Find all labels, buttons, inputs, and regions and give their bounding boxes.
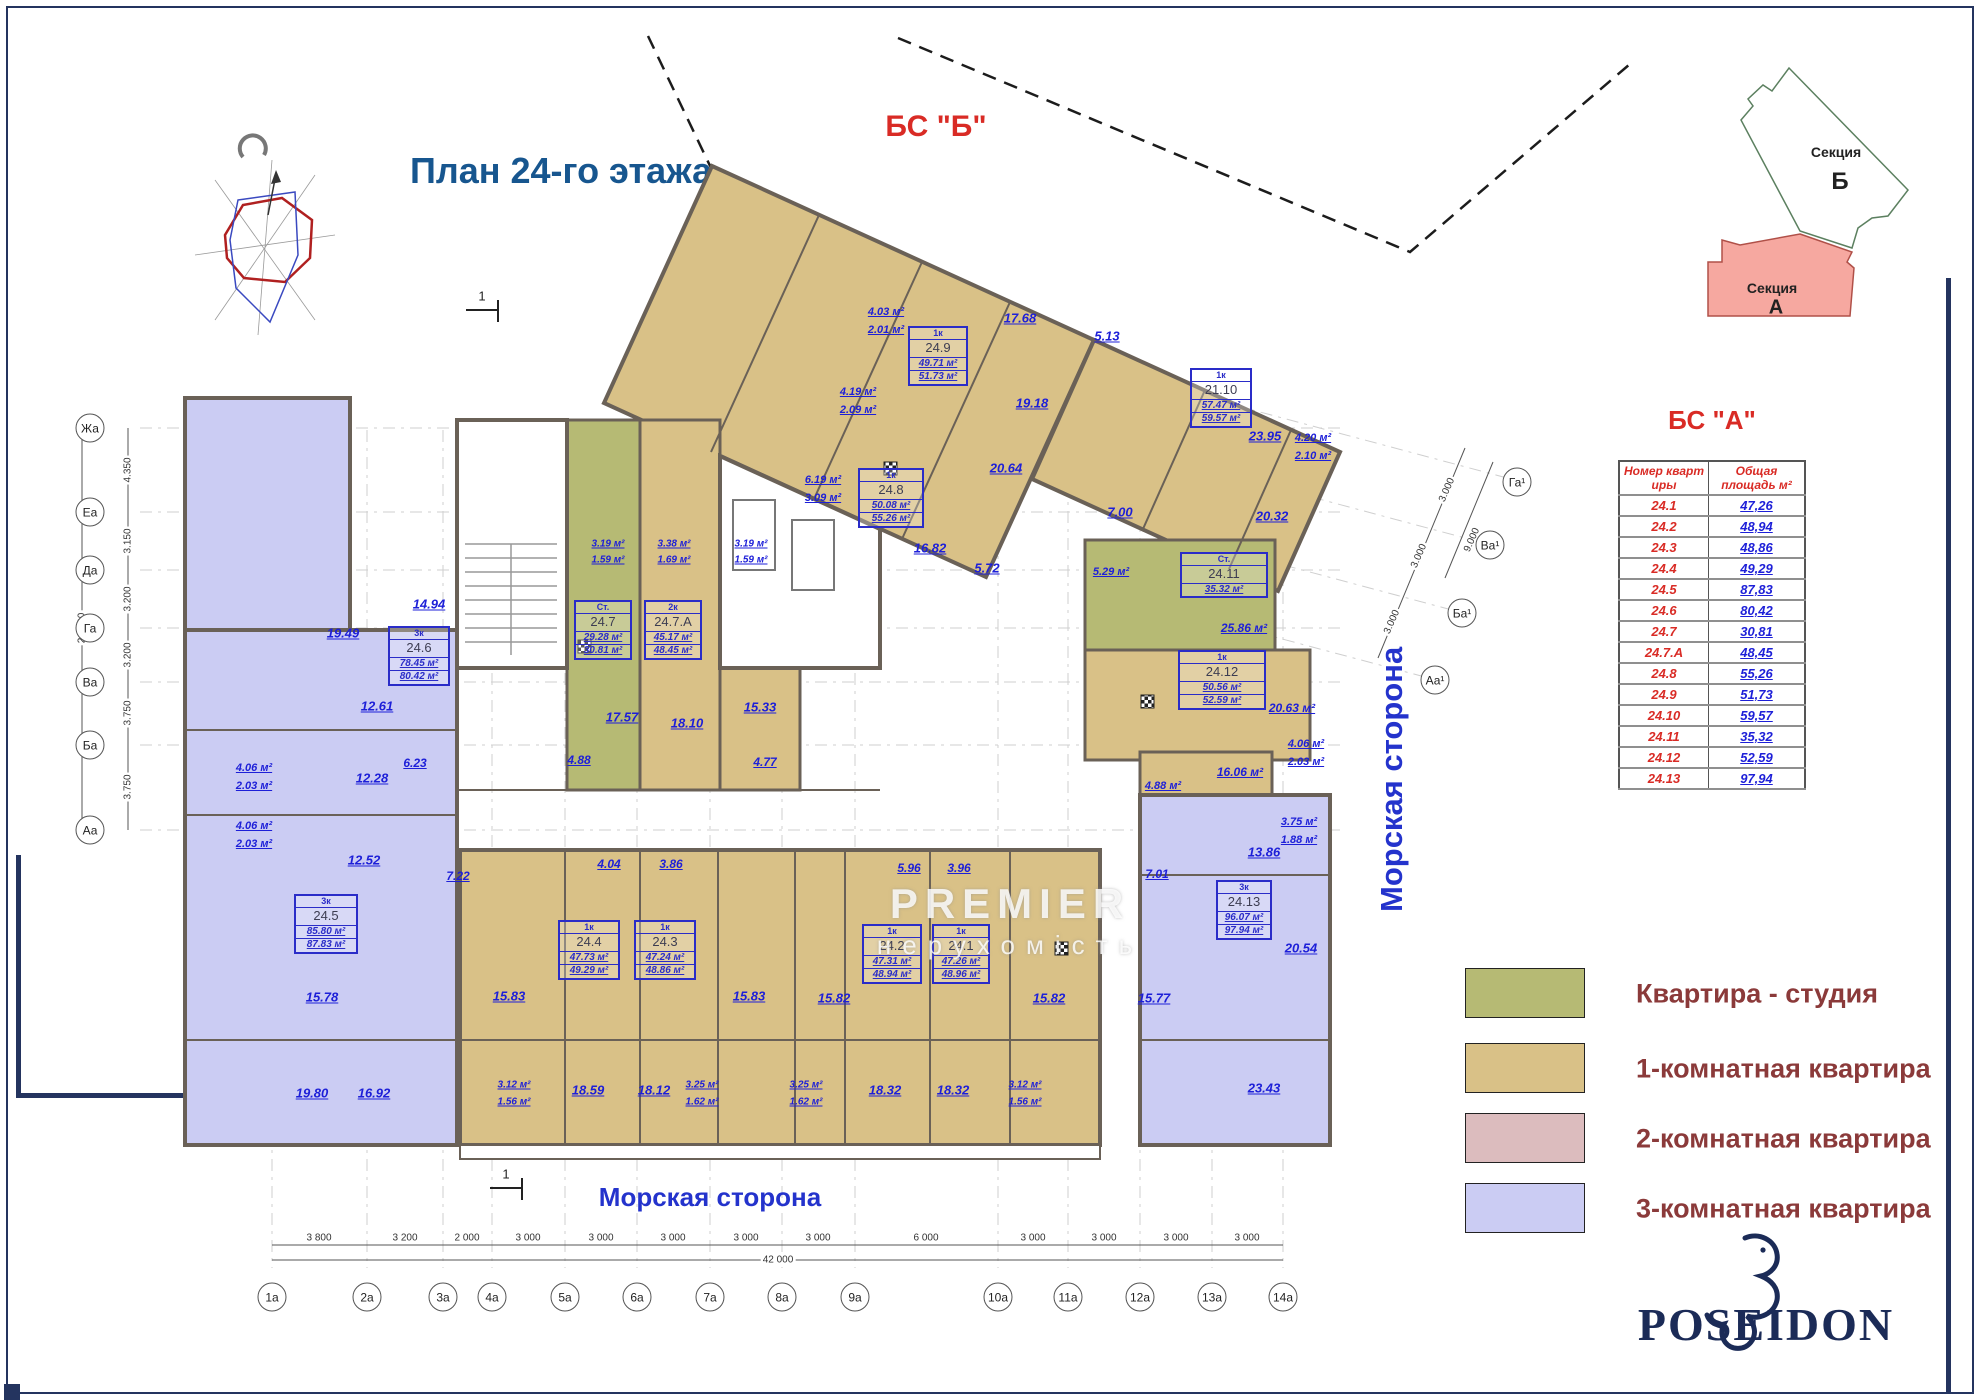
room-area-label: 4.03 м² — [868, 306, 904, 318]
room-area-label: 18.59 — [572, 1083, 605, 1098]
room-area-label: 15.83 — [493, 989, 526, 1004]
axis-left-ba: Ба — [76, 731, 105, 760]
dim-label: 3.200 — [123, 584, 134, 613]
inset-section-a-letter: А — [1769, 297, 1783, 320]
apartment-area-table: Номер кварт иры Общая площадь м² 24.147,… — [1618, 460, 1806, 790]
dim-label: 6 000 — [911, 1233, 940, 1244]
room-area-label: 3.75 м² — [1281, 816, 1317, 828]
room-area-label: 7.22 — [446, 869, 469, 883]
unit-label-24-5: 3к24.5 85.80 м²87.83 м² — [294, 894, 358, 954]
room-area-label: 1.56 м² — [498, 1097, 531, 1108]
dim-label: 3 000 — [803, 1233, 832, 1244]
building-inset — [1708, 68, 1908, 316]
dim-label: 4.350 — [123, 455, 134, 484]
room-area-label: 19.80 — [296, 1086, 329, 1101]
dim-label: 3.750 — [123, 698, 134, 727]
floor-plan-page: План 24-го этажа БС "Б" БС "А" Секция Б … — [0, 0, 1980, 1400]
dim-label: 2 000 — [452, 1233, 481, 1244]
room-area-label: 17.68 — [1004, 311, 1037, 326]
axis-bottom-4a: 4а — [478, 1283, 507, 1312]
sea-side-label-bottom: Морская сторона — [540, 1182, 880, 1213]
table-row: 24.680,42 — [1619, 600, 1805, 621]
axis-left-aa: Аа — [76, 816, 105, 845]
room-area-label: 20.63 м² — [1269, 701, 1315, 715]
room-area-label: 1.59 м² — [735, 555, 768, 566]
watermark: PREMIER нерухомість — [820, 880, 1200, 961]
room-area-label: 4.20 м² — [1295, 432, 1331, 444]
legend-label-studio: Квартира - студия — [1636, 979, 1878, 1010]
room-area-label: 18.32 — [869, 1083, 902, 1098]
table-header-number: Номер кварт иры — [1619, 461, 1709, 495]
table-row: 24.7.А48,45 — [1619, 642, 1805, 663]
room-area-label: 15.83 — [733, 989, 766, 1004]
room-area-label: 4.04 — [597, 857, 620, 871]
room-area-label: 3.19 м² — [735, 539, 768, 550]
dim-total-bottom: 42 000 — [761, 1255, 796, 1266]
room-area-label: 7.01 — [1145, 867, 1168, 881]
axis-bottom-2a: 2а — [353, 1283, 382, 1312]
axis-bottom-14a: 14а — [1269, 1283, 1298, 1312]
room-area-label: 20.32 — [1256, 509, 1289, 524]
axis-bottom-8a: 8а — [768, 1283, 797, 1312]
room-area-label: 1.59 м² — [592, 555, 625, 566]
compass-icon — [195, 135, 335, 335]
dim-label: 3 000 — [658, 1233, 687, 1244]
dim-label: 3 000 — [1089, 1233, 1118, 1244]
table-row: 24.248,94 — [1619, 516, 1805, 537]
inset-section-b-letter: Б — [1831, 168, 1848, 196]
room-area-label: 3.25 м² — [686, 1080, 719, 1091]
axis-bottom-12a: 12а — [1126, 1283, 1155, 1312]
room-area-label: 1.62 м² — [686, 1097, 719, 1108]
room-area-label: 4.77 — [753, 755, 776, 769]
room-area-label: 23.95 — [1249, 429, 1282, 444]
axis-bottom-9a: 9а — [841, 1283, 870, 1312]
dim-label: 3.150 — [123, 526, 134, 555]
room-area-label: 18.12 — [638, 1083, 671, 1098]
room-area-label: 5.96 — [897, 861, 920, 875]
room-area-label: 7.00 — [1107, 505, 1132, 520]
room-area-label: 3.09 м² — [805, 492, 841, 504]
room-area-label: 12.52 — [348, 853, 381, 868]
unit-label-24-7a: 2к24.7.А 45.17 м²48.45 м² — [644, 600, 702, 660]
axis-bottom-13a: 13а — [1198, 1283, 1227, 1312]
table-row: 24.730,81 — [1619, 621, 1805, 642]
room-area-label: 17.57 — [606, 710, 639, 725]
dim-label: 3 800 — [304, 1233, 333, 1244]
room-area-label: 6.23 — [403, 756, 426, 770]
room-area-label: 20.54 — [1285, 941, 1318, 956]
dim-label: 3 000 — [1161, 1233, 1190, 1244]
room-area-label: 1.88 м² — [1281, 834, 1317, 846]
axis-bottom-6a: 6а — [623, 1283, 652, 1312]
room-area-label: 12.28 — [356, 771, 389, 786]
unit-label-24-6: 3к24.6 78.45 м²80.42 м² — [388, 626, 450, 686]
room-area-label: 16.82 — [914, 541, 947, 556]
room-area-label: 15.33 — [744, 700, 777, 715]
axis-right-va1: Ва¹ — [1476, 531, 1505, 560]
room-area-label: 19.18 — [1016, 396, 1049, 411]
table-row: 24.1397,94 — [1619, 768, 1805, 789]
unit-label-24-10: 1к21.10 57.47 м²59.57 м² — [1190, 368, 1252, 428]
unit-label-24-12: 1к24.12 50.56 м²52.59 м² — [1178, 650, 1266, 710]
room-area-label: 12.61 — [361, 699, 394, 714]
room-area-label: 2.03 м² — [236, 780, 272, 792]
room-area-label: 3.12 м² — [1009, 1080, 1042, 1091]
dim-label: 3 000 — [586, 1233, 615, 1244]
room-area-label: 4.19 м² — [840, 386, 876, 398]
dim-label: 3 000 — [513, 1233, 542, 1244]
table-row: 24.587,83 — [1619, 579, 1805, 600]
table-row: 24.147,26 — [1619, 495, 1805, 516]
room-area-label: 13.86 — [1248, 845, 1281, 860]
dim-label: 3 000 — [1018, 1233, 1047, 1244]
room-area-label: 5.72 — [974, 561, 999, 576]
dim-label: 3.200 — [123, 640, 134, 669]
room-area-label: 18.10 — [671, 716, 704, 731]
room-area-label: 19.49 — [327, 626, 360, 641]
unit-label-24-3: 1к24.3 47.24 м²48.86 м² — [634, 920, 696, 980]
dim-label: 3 200 — [390, 1233, 419, 1244]
dim-label: 3 000 — [1232, 1233, 1261, 1244]
axis-left-ga: Га — [76, 614, 105, 643]
room-area-label: 2.10 м² — [1295, 450, 1331, 462]
room-area-label: 18.32 — [937, 1083, 970, 1098]
table-row: 24.348,86 — [1619, 537, 1805, 558]
room-area-label: 2.01 м² — [868, 324, 904, 336]
room-area-label: 3.25 м² — [790, 1080, 823, 1091]
room-area-label: 3.19 м² — [592, 539, 625, 550]
table-header-area: Общая площадь м² — [1709, 461, 1806, 495]
room-area-label: 23.43 — [1248, 1081, 1281, 1096]
axis-bottom-5a: 5а — [551, 1283, 580, 1312]
legend-swatch-2room — [1465, 1113, 1585, 1163]
room-area-label: 15.78 — [306, 990, 339, 1005]
room-area-label: 6.19 м² — [805, 474, 841, 486]
unit-label-24-7: Ст.24.7 29.28 м²30.81 м² — [574, 600, 632, 660]
dim-label: 3 000 — [731, 1233, 760, 1244]
axis-bottom-1a: 1а — [258, 1283, 287, 1312]
table-row: 24.1059,57 — [1619, 705, 1805, 726]
axis-bottom-10a: 10а — [984, 1283, 1013, 1312]
axis-right-ba1: Ба¹ — [1448, 599, 1477, 628]
legend-swatch-studio — [1465, 968, 1585, 1018]
room-area-label: 2.03 м² — [236, 838, 272, 850]
table-row: 24.1135,32 — [1619, 726, 1805, 747]
legend-label-1room: 1-комнатная квартира — [1636, 1054, 1931, 1085]
room-area-label: 15.82 — [818, 991, 851, 1006]
room-area-label: 1.69 м² — [658, 555, 691, 566]
table-row: 24.855,26 — [1619, 663, 1805, 684]
unit-label-24-13: 3к24.13 96.07 м²97.94 м² — [1216, 880, 1272, 940]
room-area-label: 5.13 — [1094, 329, 1119, 344]
inset-section-b-word: Секция — [1811, 144, 1861, 160]
room-area-label: 3.12 м² — [498, 1080, 531, 1091]
axis-bottom-3a: 3а — [429, 1283, 458, 1312]
room-area-label: 4.06 м² — [1288, 738, 1324, 750]
axis-left-va: Ва — [76, 668, 105, 697]
inset-section-a-word: Секция — [1747, 280, 1797, 296]
table-row: 24.951,73 — [1619, 684, 1805, 705]
table-row: 24.449,29 — [1619, 558, 1805, 579]
apartment-regions — [185, 166, 1340, 1159]
room-area-label: 1.56 м² — [1009, 1097, 1042, 1108]
unit-label-24-4: 1к24.4 47.73 м²49.29 м² — [558, 920, 620, 980]
room-area-label: 1.62 м² — [790, 1097, 823, 1108]
room-area-label: 4.88 м² — [1145, 780, 1181, 792]
section-mark-bottom: 1 — [502, 1167, 509, 1182]
room-area-label: 4.06 м² — [236, 820, 272, 832]
legend-label-3room: 3-комнатная квартира — [1636, 1194, 1931, 1225]
unit-label-24-8: 1к24.8 50.08 м²55.26 м² — [858, 468, 924, 528]
room-area-label: 3.86 — [659, 857, 682, 871]
axis-left-da: Да — [76, 556, 105, 585]
room-area-label: 15.82 — [1033, 991, 1066, 1006]
axis-right-aa1: Аа¹ — [1421, 666, 1450, 695]
axis-left-zha: Жа — [76, 414, 105, 443]
dim-label: 3.750 — [123, 772, 134, 801]
room-area-label: 5.29 м² — [1093, 566, 1129, 578]
axis-bottom-7a: 7а — [696, 1283, 725, 1312]
room-area-label: 4.06 м² — [236, 762, 272, 774]
legend-swatch-1room — [1465, 1043, 1585, 1093]
axis-left-ea: Еа — [76, 498, 105, 527]
room-area-label: 16.92 — [358, 1086, 391, 1101]
room-area-label: 20.64 — [990, 461, 1023, 476]
room-area-label: 3.38 м² — [658, 539, 691, 550]
room-area-label: 16.06 м² — [1217, 765, 1263, 779]
axis-right-ga1: Га¹ — [1503, 468, 1532, 497]
room-area-label: 25.86 м² — [1221, 621, 1267, 635]
table-row: 24.1252,59 — [1619, 747, 1805, 768]
room-area-label: 15.77 — [1138, 991, 1171, 1006]
room-area-label: 4.88 — [567, 753, 590, 767]
legend-label-2room: 2-комнатная квартира — [1636, 1124, 1931, 1155]
unit-label-24-9: 1к24.9 49.71 м²51.73 м² — [908, 326, 968, 386]
axis-bottom-11a: 11а — [1054, 1283, 1083, 1312]
room-area-label: 2.03 м² — [1288, 756, 1324, 768]
room-area-label: 3.96 — [947, 861, 970, 875]
section-mark-top: 1 — [478, 289, 485, 304]
unit-label-24-11: Ст.24.11 35.32 м² — [1180, 552, 1268, 598]
sea-side-label-right: Морская сторона — [1374, 488, 1410, 912]
room-area-label: 14.94 — [413, 597, 446, 612]
legend-swatch-3room — [1465, 1183, 1585, 1233]
poseidon-logo: POSEIDON — [1588, 1298, 1944, 1351]
room-area-label: 2.09 м² — [840, 404, 876, 416]
